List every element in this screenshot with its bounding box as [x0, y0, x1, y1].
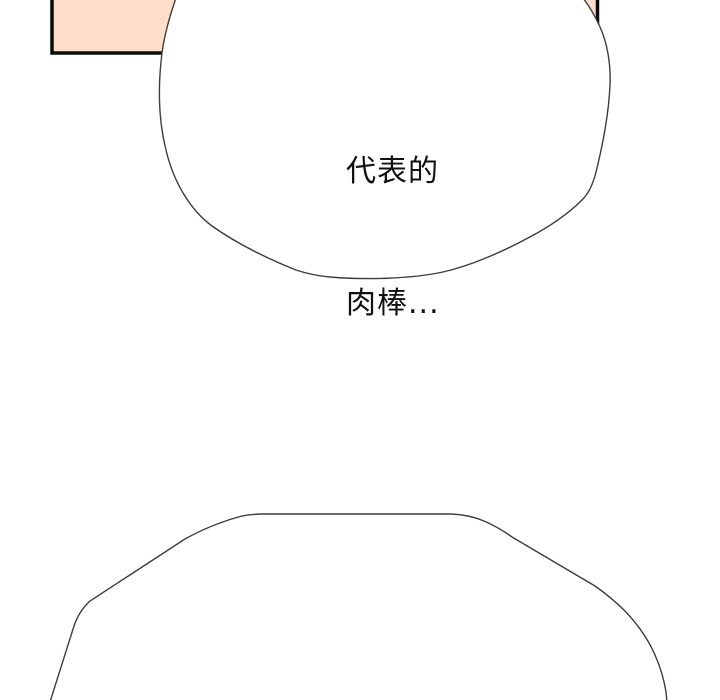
speech-bubble-1-text: 代表的 肉棒... — [346, 62, 440, 414]
speech-bubble-1-line-1: 代表的 — [346, 150, 440, 194]
speech-bubble-1-line-2: 肉棒... — [346, 282, 440, 326]
comic-page: 代表的 肉棒... 看起来 — [0, 0, 720, 700]
speech-bubble-2-text: 看起来 — [306, 672, 405, 700]
